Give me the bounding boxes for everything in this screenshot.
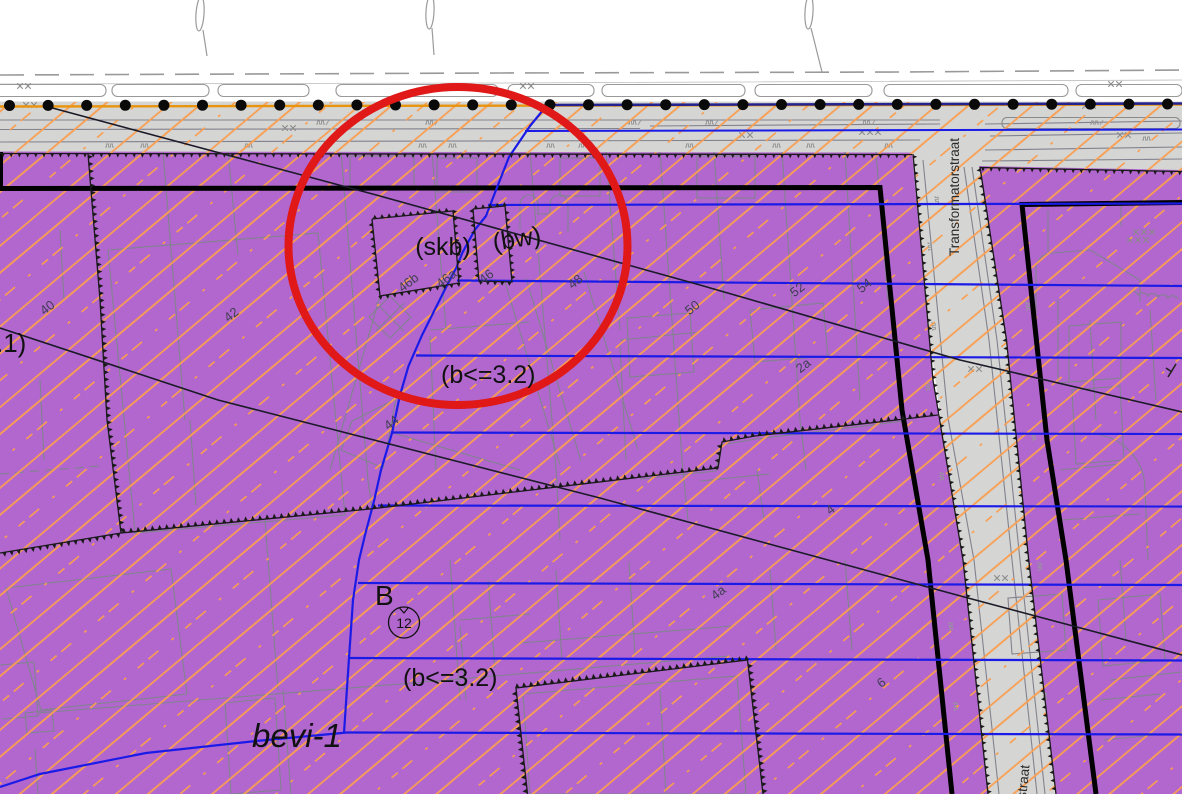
svg-text:B: B [375, 580, 394, 611]
svg-text:.1): .1) [0, 328, 26, 358]
svg-text:straat: straat [1014, 764, 1032, 794]
svg-text:Transformatorstraat: Transformatorstraat [947, 138, 962, 256]
svg-text:(b<=3.2): (b<=3.2) [403, 664, 498, 692]
svg-text:(skb): (skb) [415, 233, 471, 261]
svg-text:bevi-1: bevi-1 [252, 717, 342, 754]
svg-text:12: 12 [396, 615, 412, 631]
svg-text:(b<=3.2): (b<=3.2) [441, 361, 536, 389]
